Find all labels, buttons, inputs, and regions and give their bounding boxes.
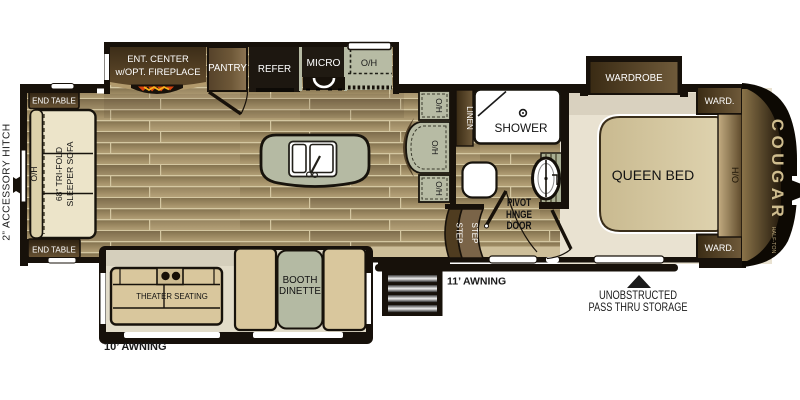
svg-text:WARD.: WARD. <box>705 243 735 253</box>
svg-text:END TABLE: END TABLE <box>32 97 76 106</box>
svg-text:PASS THRU STORAGE: PASS THRU STORAGE <box>589 300 688 314</box>
svg-text:WARD.: WARD. <box>705 96 735 106</box>
svg-text:REFER: REFER <box>258 64 291 75</box>
svg-text:BOOTH: BOOTH <box>283 275 318 286</box>
svg-text:SLEEPER SOFA: SLEEPER SOFA <box>65 141 75 206</box>
svg-text:STEP: STEP <box>470 223 479 244</box>
svg-text:PANTRY: PANTRY <box>208 63 247 74</box>
svg-text:QUEEN BED: QUEEN BED <box>612 167 694 183</box>
svg-text:HALF-TON: HALF-TON <box>770 227 776 254</box>
svg-text:68” TRI-FOLD: 68” TRI-FOLD <box>54 147 64 201</box>
svg-text:H/O: H/O <box>730 167 740 183</box>
svg-text:DOOR: DOOR <box>507 220 532 232</box>
svg-text:WARDROBE: WARDROBE <box>605 73 663 84</box>
svg-text:END TABLE: END TABLE <box>32 246 76 255</box>
svg-text:O/H: O/H <box>29 167 39 182</box>
svg-text:11’ AWNING: 11’ AWNING <box>447 276 506 288</box>
svg-text:LINEN: LINEN <box>465 106 474 130</box>
svg-text:MICRO: MICRO <box>307 58 341 69</box>
svg-text:w/OPT. FIREPLACE: w/OPT. FIREPLACE <box>115 66 201 77</box>
svg-text:THEATER SEATING: THEATER SEATING <box>136 292 208 301</box>
svg-text:PIVOT: PIVOT <box>507 197 531 209</box>
svg-text:SHOWER: SHOWER <box>494 121 547 135</box>
svg-text:DINETTE: DINETTE <box>279 286 321 297</box>
svg-text:O/H: O/H <box>430 140 439 155</box>
svg-text:10’ AWNING: 10’ AWNING <box>104 341 167 353</box>
svg-text:O/H: O/H <box>434 98 443 113</box>
svg-text:2” ACCESSORY HITCH: 2” ACCESSORY HITCH <box>2 123 13 240</box>
svg-text:COUGAR: COUGAR <box>768 119 787 222</box>
svg-text:ENT. CENTER: ENT. CENTER <box>127 53 189 64</box>
svg-text:STEP: STEP <box>455 223 464 244</box>
svg-text:O/H: O/H <box>361 58 377 68</box>
svg-text:O/H: O/H <box>434 181 443 196</box>
